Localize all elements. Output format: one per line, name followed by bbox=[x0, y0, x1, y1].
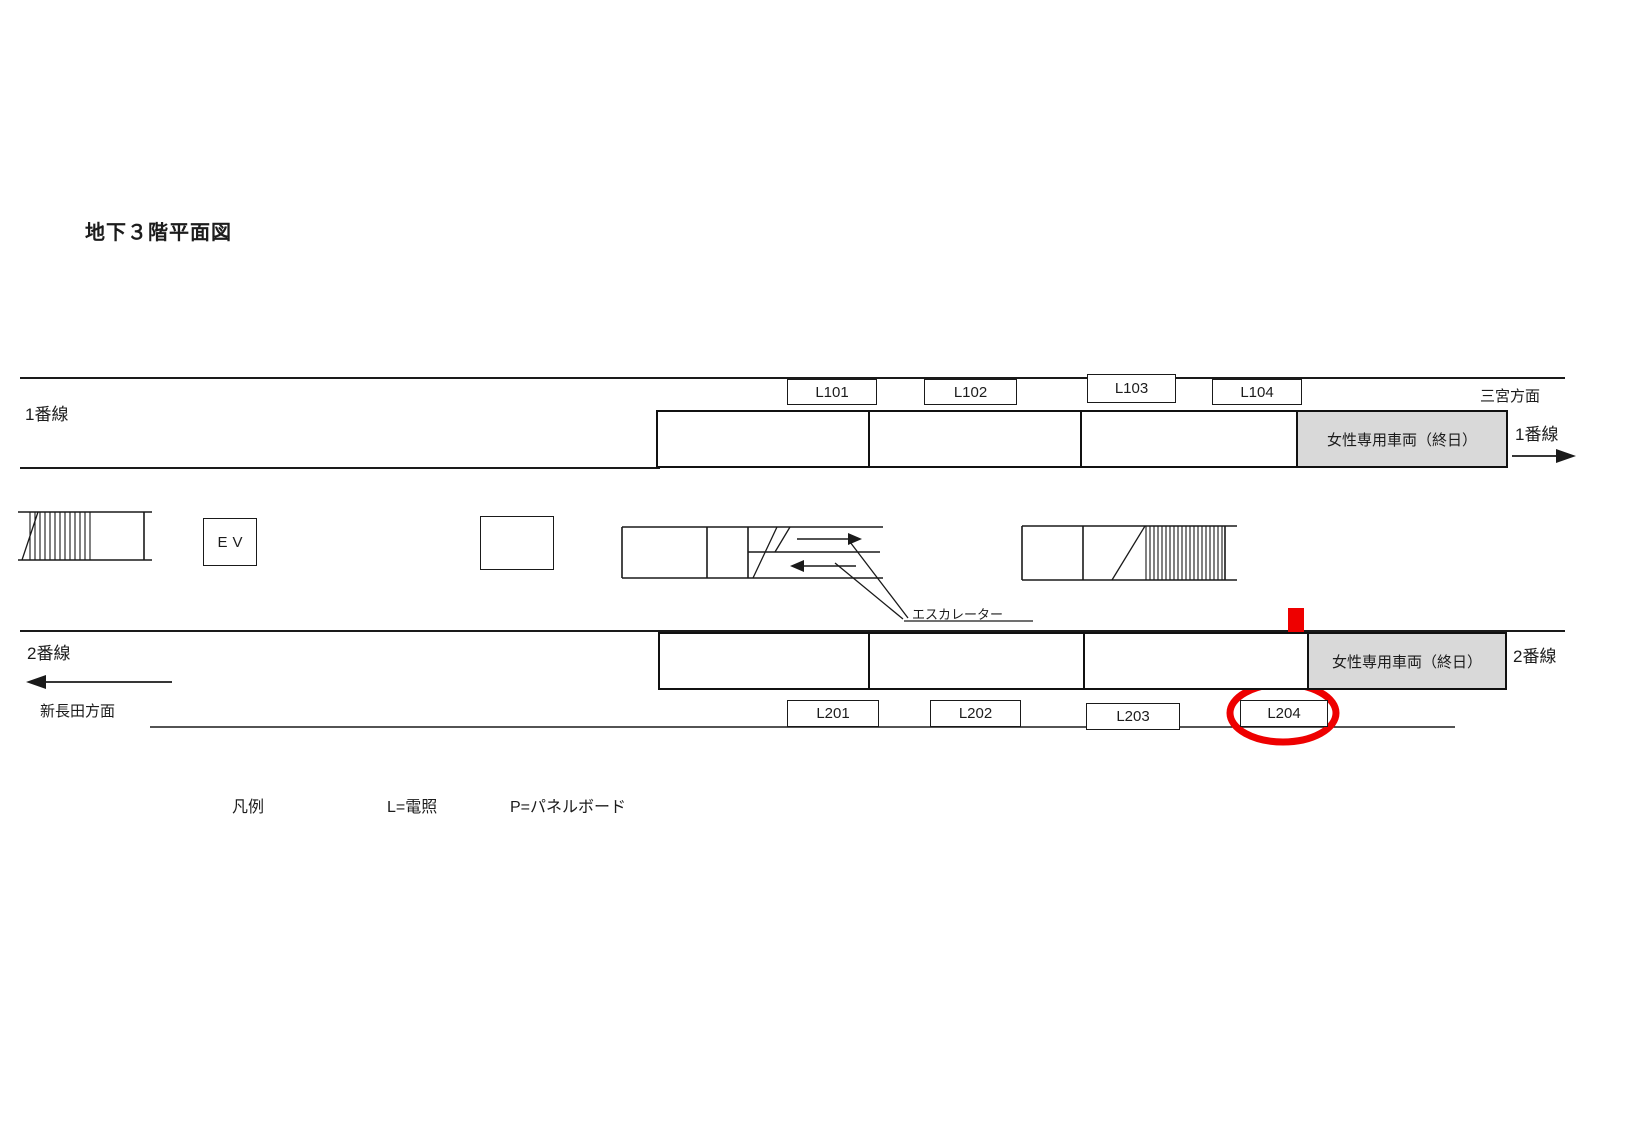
legend-item-l: L=電照 bbox=[387, 793, 437, 817]
track2-car-3 bbox=[1083, 632, 1309, 690]
panel-label-L104: L104 bbox=[1212, 379, 1302, 405]
track2-women-only-car: 女性専用車両（終日） bbox=[1307, 632, 1507, 690]
panel-label-L104-text: L104 bbox=[1240, 384, 1273, 401]
panel-label-L103: L103 bbox=[1087, 374, 1176, 403]
track1-car-1 bbox=[656, 410, 870, 468]
track1-women-only-car-text: 女性専用車両（終日） bbox=[1327, 429, 1477, 450]
concourse-room-box bbox=[480, 516, 554, 570]
track2-car-1 bbox=[658, 632, 870, 690]
panel-label-L202-text: L202 bbox=[959, 705, 992, 722]
panel-label-L103-text: L103 bbox=[1115, 380, 1148, 397]
elevator-label: EV bbox=[217, 534, 247, 551]
shin-nagata-direction-arrow bbox=[26, 675, 172, 689]
escalator-down-arrowhead bbox=[790, 560, 804, 572]
track2-women-only-car-text: 女性専用車両（終日） bbox=[1332, 651, 1482, 672]
track2-label-right: 2番線 bbox=[1513, 642, 1556, 667]
stairs-right-icon bbox=[1022, 526, 1237, 580]
track2-car-2 bbox=[868, 632, 1085, 690]
track1-direction-label: 三宮方面 bbox=[1480, 385, 1540, 406]
panel-label-L204-text: L204 bbox=[1267, 705, 1300, 722]
sannomiya-direction-arrow bbox=[1512, 449, 1576, 463]
panel-label-L201-text: L201 bbox=[816, 705, 849, 722]
escalator-label: エスカレーター bbox=[912, 604, 1003, 623]
panel-label-L203: L203 bbox=[1086, 703, 1180, 730]
legend-heading: 凡例 bbox=[232, 793, 264, 817]
track1-car-3 bbox=[1080, 410, 1298, 468]
elevator-box: EV bbox=[203, 518, 257, 566]
track2-label-left: 2番線 bbox=[27, 639, 70, 664]
stairs-left-icon bbox=[18, 512, 152, 560]
panel-label-L101: L101 bbox=[787, 379, 877, 405]
diagram-linework bbox=[0, 0, 1634, 1135]
panel-label-L202: L202 bbox=[930, 700, 1021, 727]
floor-plan-canvas: 地下３階平面図 bbox=[0, 0, 1634, 1135]
track2-direction-label: 新長田方面 bbox=[40, 700, 115, 721]
track1-label-left: 1番線 bbox=[25, 400, 68, 425]
panel-label-L102: L102 bbox=[924, 379, 1017, 405]
track1-label-right: 1番線 bbox=[1515, 420, 1558, 445]
track1-women-only-car: 女性専用車両（終日） bbox=[1296, 410, 1508, 468]
track1-car-2 bbox=[868, 410, 1082, 468]
panel-label-L203-text: L203 bbox=[1116, 708, 1149, 725]
panel-label-L102-text: L102 bbox=[954, 384, 987, 401]
panel-label-L204: L204 bbox=[1240, 700, 1328, 727]
panel-label-L101-text: L101 bbox=[815, 384, 848, 401]
legend-item-p: P=パネルボード bbox=[510, 793, 626, 817]
panel-label-L201: L201 bbox=[787, 700, 879, 727]
